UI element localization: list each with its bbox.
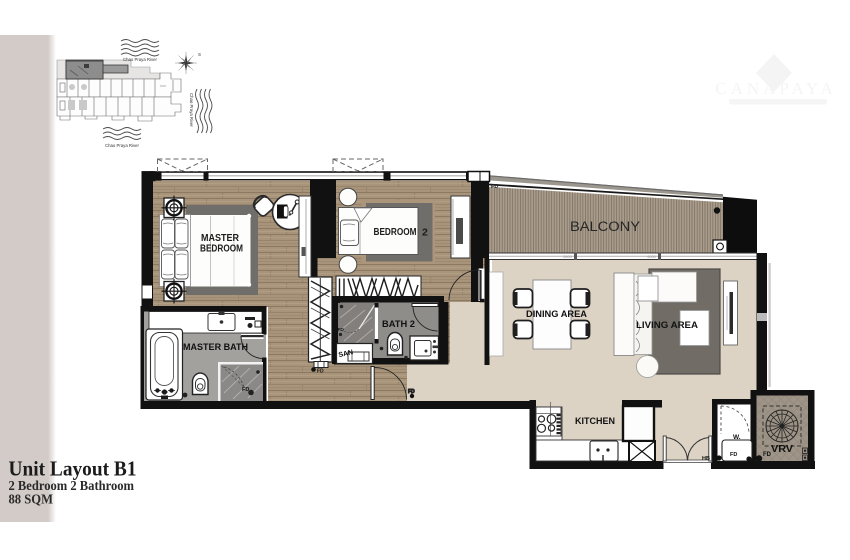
- svg-text:BEDROOM: BEDROOM: [374, 226, 417, 238]
- svg-text:LIVING AREA: LIVING AREA: [636, 320, 699, 330]
- svg-text:FD: FD: [491, 184, 498, 190]
- svg-text:Chao Praya River: Chao Praya River: [189, 93, 194, 127]
- svg-text:W.: W.: [733, 434, 741, 441]
- svg-text:Unit Layout B1: Unit Layout B1: [9, 457, 137, 481]
- svg-text:BATH 2: BATH 2: [382, 319, 415, 330]
- svg-text:HB: HB: [702, 456, 710, 462]
- svg-text:FD: FD: [763, 452, 772, 458]
- svg-text:Chao Praya River: Chao Praya River: [105, 143, 139, 148]
- svg-text:FD: FD: [242, 387, 249, 393]
- svg-text:DINING AREA: DINING AREA: [526, 309, 587, 320]
- svg-text:FD: FD: [338, 327, 345, 333]
- svg-text:VRV: VRV: [771, 443, 793, 455]
- svg-text:BALCONY: BALCONY: [570, 219, 640, 234]
- svg-text:88 SQM: 88 SQM: [9, 492, 54, 507]
- svg-text:CANAPAYA: CANAPAYA: [715, 79, 836, 98]
- svg-text:FD: FD: [408, 389, 415, 395]
- svg-text:Chao Praya River: Chao Praya River: [123, 57, 157, 62]
- svg-text:S: S: [198, 52, 201, 57]
- svg-text:MASTER BATH: MASTER BATH: [183, 342, 248, 353]
- svg-text:KITCHEN: KITCHEN: [575, 416, 615, 427]
- svg-text:4000: 4000: [647, 254, 657, 259]
- svg-text:2800: 2800: [563, 254, 573, 259]
- svg-text:FD: FD: [730, 452, 737, 458]
- svg-text:FD: FD: [317, 369, 324, 375]
- svg-text:BEDROOM: BEDROOM: [200, 243, 243, 255]
- svg-text:2: 2: [422, 227, 428, 239]
